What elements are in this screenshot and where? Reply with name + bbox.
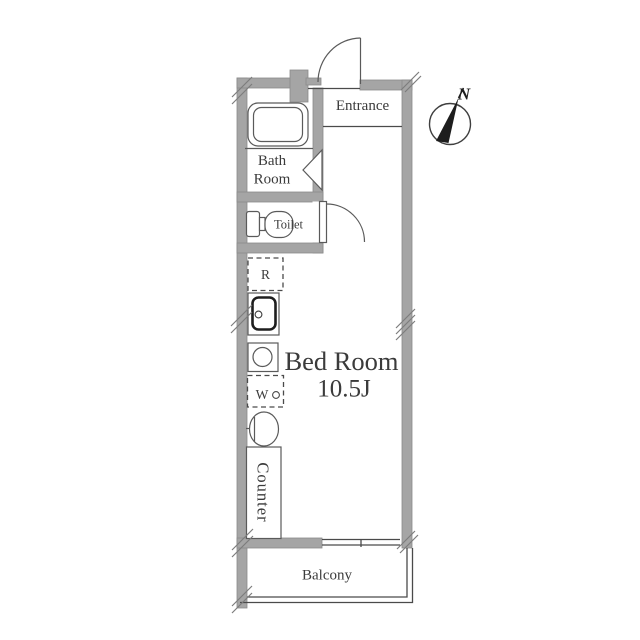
wall-doorframe-strip xyxy=(306,78,321,85)
bath-room-label-line1: Bath xyxy=(258,153,287,169)
toilet-door xyxy=(313,202,365,243)
toilet-label: Toilet xyxy=(274,218,304,232)
washbasin xyxy=(246,412,279,446)
floor-plan-drawing: N Entrance Bath Room Toilet R W Bed Room… xyxy=(0,0,640,640)
entrance-label: Entrance xyxy=(336,98,390,114)
toilet-tank xyxy=(247,212,260,237)
wall-bath-toilet-divider xyxy=(237,192,323,202)
toilet-door-leaf xyxy=(320,202,327,243)
bathtub xyxy=(248,103,308,146)
wall-entrance-pilaster xyxy=(290,70,308,102)
toilet-connector xyxy=(260,218,266,231)
kitchen-sink-unit xyxy=(248,293,279,335)
sink-faucet xyxy=(255,311,262,318)
bath-folding-door xyxy=(303,150,322,190)
balcony-window xyxy=(322,539,400,547)
bath-room-label-line2: Room xyxy=(254,172,291,188)
floor-plan-canvas: N Entrance Bath Room Toilet R W Bed Room… xyxy=(0,0,640,640)
stove-unit xyxy=(248,343,278,372)
compass-north-label: N xyxy=(457,85,471,104)
balcony-label: Balcony xyxy=(302,568,352,584)
washbasin-bowl xyxy=(250,412,279,446)
refrigerator-label: R xyxy=(261,267,270,282)
wall-left xyxy=(237,78,247,608)
counter-label: Counter xyxy=(254,462,273,522)
wall-toilet-bottom xyxy=(237,243,323,253)
bedroom-size-label: 10.5J xyxy=(317,376,371,403)
entrance-door-swing-arc xyxy=(318,38,361,82)
toilet-door-swing-arc xyxy=(327,204,365,242)
washing-machine-label: W xyxy=(256,387,269,402)
compass: N xyxy=(430,85,471,145)
bedroom-name-label: Bed Room xyxy=(284,346,398,376)
washing-machine-tap xyxy=(273,392,280,399)
bathtub-inner xyxy=(254,108,303,142)
